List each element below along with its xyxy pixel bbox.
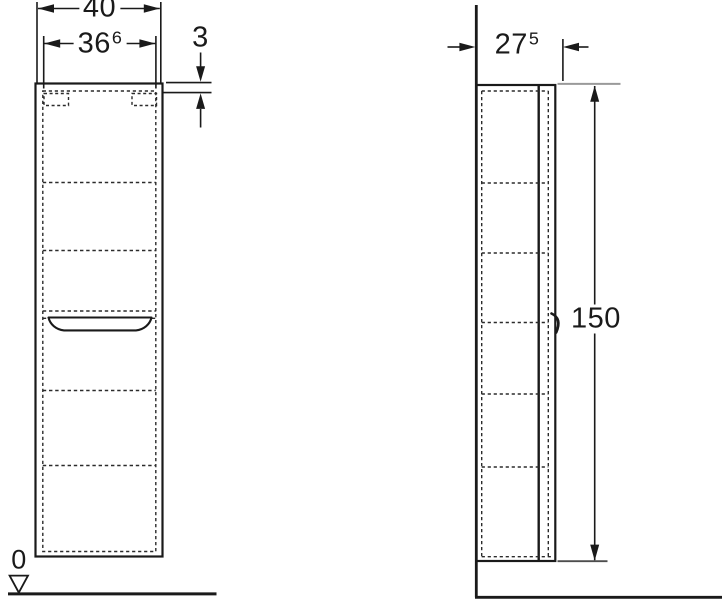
arrowhead-down-icon xyxy=(590,545,599,561)
level-datum-triangle-icon xyxy=(10,576,28,593)
arrowhead-up-icon xyxy=(590,86,599,102)
dimension-label-overall-width: 40 xyxy=(79,0,120,23)
arrowhead-left-icon xyxy=(44,39,60,48)
arrowhead-down-icon xyxy=(196,66,205,82)
dimension-label-height: 150 xyxy=(567,305,625,334)
dimension-label-door-width: 366 xyxy=(74,30,127,59)
technical-drawing-canvas xyxy=(0,0,725,600)
arrowhead-right-icon xyxy=(144,4,160,13)
arrowhead-left-icon xyxy=(38,4,54,13)
side-view xyxy=(475,5,722,597)
floor-level-marker xyxy=(8,576,217,594)
door-handle-front xyxy=(49,318,152,331)
front-view xyxy=(36,84,163,557)
dimension-label-depth: 275 xyxy=(491,31,544,60)
arrowhead-right-icon xyxy=(139,39,155,48)
arrowhead-right-icon xyxy=(459,43,475,52)
dimension-label-floor-level: 0 xyxy=(7,547,31,574)
technical-drawing-page: 40 366 3 275 150 0 xyxy=(0,0,725,600)
arrowhead-left-icon xyxy=(563,43,579,52)
arrowhead-up-icon xyxy=(196,93,205,109)
dimension-label-top-panel: 3 xyxy=(188,24,213,53)
